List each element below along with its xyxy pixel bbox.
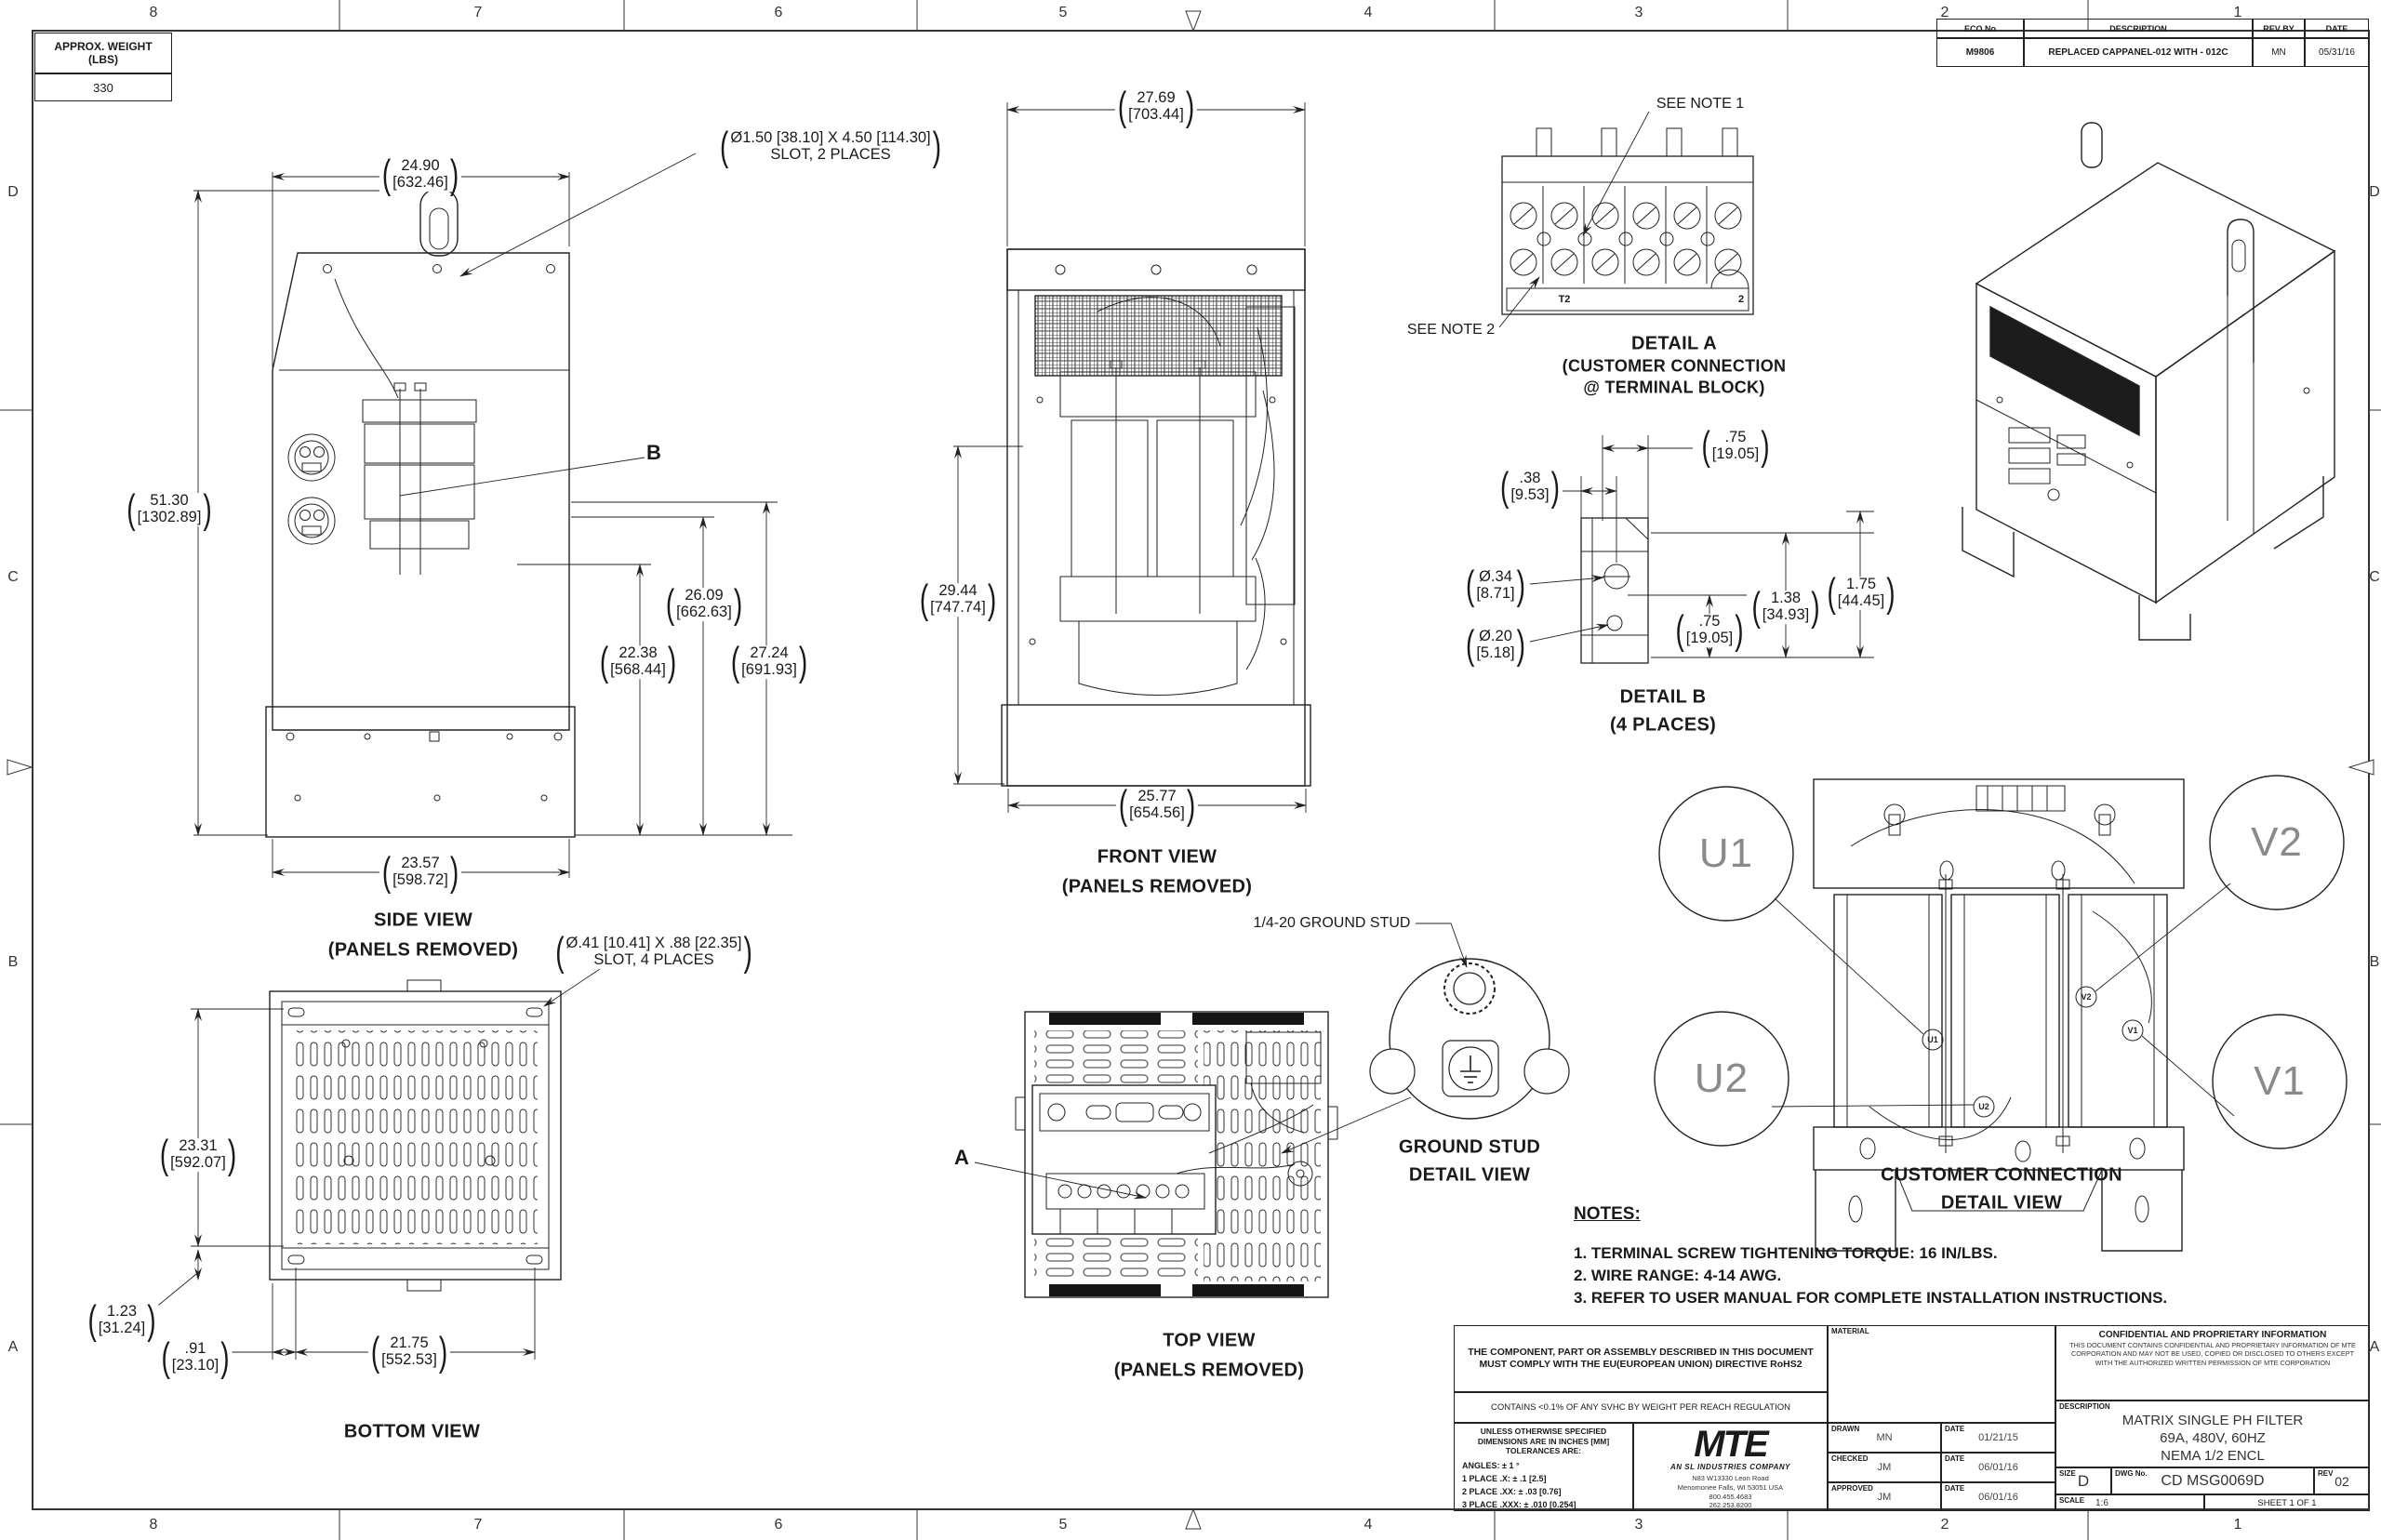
- size-label: SIZE: [2059, 1469, 2076, 1478]
- zone-bottom-7: 7: [474, 1517, 483, 1533]
- eco-header-revby: REV BY: [2253, 19, 2305, 38]
- zone-bottom-5: 5: [1059, 1517, 1068, 1533]
- eco-revby: MN: [2253, 38, 2305, 67]
- zone-right-b: B: [2370, 954, 2380, 971]
- weight-header-line1: APPROX. WEIGHT: [54, 40, 152, 53]
- address-line3: 800.455.4683: [1634, 1493, 1827, 1502]
- front-dim-width-top: (27.69[703.44]): [1115, 90, 1197, 124]
- rev-cell: REV 02: [2314, 1467, 2370, 1494]
- zone-bottom-1: 1: [2234, 1517, 2242, 1533]
- description-label: DESCRIPTION: [2059, 1402, 2110, 1411]
- side-view-title: SIDE VIEW: [374, 910, 472, 932]
- top-view-subtitle: (PANELS REMOVED): [1114, 1361, 1304, 1382]
- customer-connection-title-2: DETAIL VIEW: [1941, 1193, 2062, 1215]
- note-3: 3. REFER TO USER MANUAL FOR COMPLETE INS…: [1574, 1289, 2167, 1308]
- drawn-date-label: DATE: [1945, 1425, 1964, 1433]
- scale-label: SCALE: [2059, 1496, 2084, 1505]
- tag-v1: V1: [2127, 1026, 2137, 1035]
- approved-date-cell: DATE 06/01/16: [1941, 1482, 2055, 1511]
- zone-top-3: 3: [1635, 5, 1643, 21]
- detail-b-dim-20: (Ø.20[5.18]): [1463, 629, 1528, 662]
- sheet-border: [0, 0, 2381, 1540]
- confidential-heading: CONFIDENTIAL AND PROPRIETARY INFORMATION: [2056, 1330, 2369, 1340]
- tol-2place: 2 PLACE .XX: ± .03 [0.76]: [1462, 1486, 1632, 1499]
- approved-label: APPROVED: [1831, 1484, 1873, 1493]
- side-view-drawing: [193, 153, 792, 878]
- balloon-v1: V1: [2254, 1058, 2306, 1105]
- checked-date-label: DATE: [1945, 1454, 1964, 1463]
- drawing-sheet: { "sheet": { "zones_h": ["8","7","6","5"…: [0, 0, 2381, 1540]
- svhc-statement: CONTAINS <0.1% OF ANY SVHC BY WEIGHT PER…: [1454, 1392, 1828, 1423]
- material-label: MATERIAL: [1831, 1327, 1869, 1335]
- detail-a-see-note-2: SEE NOTE 2: [1407, 322, 1495, 339]
- checked-date-cell: DATE 06/01/16: [1941, 1453, 2055, 1482]
- customer-connection-title: CUSTOMER CONNECTION: [1881, 1165, 2122, 1187]
- eco-header-date: DATE: [2305, 19, 2369, 38]
- confidential-box: CONFIDENTIAL AND PROPRIETARY INFORMATION…: [2055, 1325, 2370, 1401]
- detail-b-dim-138: (1.38[34.93]): [1749, 591, 1822, 624]
- top-view-title: TOP VIEW: [1163, 1331, 1255, 1352]
- balloon-v2: V2: [2251, 819, 2303, 866]
- dwg-label: DWG No.: [2115, 1469, 2148, 1478]
- weight-value: 330: [34, 73, 172, 101]
- eco-no: M9806: [1936, 38, 2024, 67]
- detail-a-see-note-1: SEE NOTE 1: [1656, 96, 1744, 113]
- top-view-drawing: [975, 1012, 1337, 1297]
- zone-top-4: 4: [1364, 5, 1373, 21]
- front-view-drawing: [953, 102, 1310, 813]
- detail-a-title-3: @ TERMINAL BLOCK): [1583, 378, 1764, 398]
- bottom-view-title: BOTTOM VIEW: [344, 1422, 480, 1443]
- ground-stud-title: GROUND STUD: [1399, 1137, 1540, 1159]
- tol-1place: 1 PLACE .X: ± .1 [2.5]: [1462, 1473, 1632, 1486]
- confidential-body: THIS DOCUMENT CONTAINS CONFIDENTIAL AND …: [2056, 1340, 2369, 1368]
- approved-date-label: DATE: [1945, 1484, 1964, 1493]
- eco-date: 05/31/16: [2305, 38, 2369, 67]
- zone-bottom-6: 6: [775, 1517, 783, 1533]
- eco-header-no: ECO No: [1936, 19, 2024, 38]
- zone-bottom-3: 3: [1635, 1517, 1643, 1533]
- side-balloon-b: B: [646, 441, 661, 465]
- description-box: DESCRIPTION MATRIX SINGLE PH FILTER 69A,…: [2055, 1401, 2370, 1467]
- notes-heading: NOTES:: [1574, 1204, 1641, 1225]
- detail-b-title: DETAIL B: [1620, 687, 1707, 709]
- logo-subtitle: AN SL INDUSTRIES COMPANY: [1634, 1463, 1827, 1471]
- bottom-dim-123: (1.23[31.24]): [85, 1304, 158, 1337]
- zone-bottom-2: 2: [1941, 1517, 1949, 1533]
- detail-b-dim-38: (.38[9.53]): [1497, 471, 1563, 504]
- zone-right-a: A: [2370, 1339, 2380, 1356]
- drawn-date-cell: DATE 01/21/15: [1941, 1423, 2055, 1453]
- tol-head2: DIMENSIONS ARE IN INCHES [MM]: [1455, 1437, 1632, 1447]
- detail-a-title-2: (CUSTOMER CONNECTION: [1563, 357, 1787, 377]
- top-balloon-a: A: [954, 1146, 969, 1170]
- sheet-value: SHEET 1 OF 1: [2205, 1495, 2369, 1510]
- detail-b-dim-75-bottom: (.75[19.05]): [1672, 614, 1746, 647]
- scale-cell: SCALE 1:6: [2055, 1494, 2204, 1511]
- tol-head3: TOLERANCES ARE:: [1455, 1446, 1632, 1456]
- description-line2: 69A, 480V, 60HZ: [2056, 1430, 2369, 1448]
- bottom-slot-callout: (Ø.41 [10.41] X .88 [22.35]SLOT, 4 PLACE…: [552, 936, 755, 969]
- zone-top-6: 6: [775, 5, 783, 21]
- description-line1: MATRIX SINGLE PH FILTER: [2056, 1413, 2369, 1430]
- eco-desc: REPLACED CAPPANEL-012 WITH - 012C: [2024, 38, 2253, 67]
- tolerance-block: UNLESS OTHERWISE SPECIFIED DIMENSIONS AR…: [1454, 1423, 1633, 1511]
- zone-bottom-4: 4: [1364, 1517, 1373, 1533]
- sheet-cell: SHEET 1 OF 1: [2204, 1494, 2370, 1511]
- tag-u1: U1: [1927, 1035, 1938, 1044]
- dwg-cell: DWG No. CD MSG0069D: [2111, 1467, 2314, 1494]
- detail-b-dim-34: (Ø.34[8.71]): [1463, 569, 1528, 603]
- isometric-view-drawing: [1962, 123, 2334, 640]
- tol-angles: ANGLES: ± 1 °: [1462, 1460, 1632, 1473]
- side-dim-width-top: (24.90[632.46]): [379, 158, 461, 192]
- logo-block: MTE AN SL INDUSTRIES COMPANY N83 W13330 …: [1633, 1423, 1828, 1511]
- tag-u2: U2: [1978, 1102, 1989, 1111]
- terminal-label-t2: T2: [1559, 294, 1571, 305]
- zone-top-5: 5: [1059, 5, 1068, 21]
- zone-right-c: C: [2369, 569, 2380, 586]
- bottom-dim-width: (21.75[552.53]): [368, 1335, 450, 1369]
- zone-bottom-8: 8: [150, 1517, 158, 1533]
- side-dim-width-bottom: (23.57[598.72]): [379, 856, 461, 889]
- zone-left-d: D: [7, 184, 19, 201]
- side-view-subtitle: (PANELS REMOVED): [328, 940, 518, 962]
- material-box: MATERIAL: [1828, 1325, 2055, 1423]
- detail-b-dim-175: (1.75[44.45]): [1824, 577, 1897, 610]
- zone-top-7: 7: [474, 5, 483, 21]
- tag-v2: V2: [2081, 992, 2091, 1002]
- drawn-label: DRAWN: [1831, 1425, 1859, 1433]
- zone-top-8: 8: [150, 5, 158, 21]
- description-line3: NEMA 1/2 ENCL: [2056, 1448, 2369, 1466]
- mte-logo: MTE: [1634, 1426, 1827, 1463]
- scale-value: 1:6: [2095, 1498, 2108, 1508]
- address-line4: 262.253.8200: [1634, 1501, 1827, 1510]
- bottom-dim-height: (23.31[592.07]): [157, 1138, 239, 1172]
- title-block: THE COMPONENT, PART OR ASSEMBLY DESCRIBE…: [1454, 1325, 2370, 1511]
- balloon-u1: U1: [1699, 830, 1753, 877]
- side-slot-callout: (Ø1.50 [38.10] X 4.50 [114.30]SLOT, 2 PL…: [717, 130, 944, 164]
- weight-header-line2: (LBS): [88, 53, 118, 66]
- side-dim-h2: (26.09[662.63]): [663, 588, 745, 621]
- front-dim-width-bottom: (25.77[654.56]): [1116, 789, 1198, 822]
- front-view-title: FRONT VIEW: [1097, 847, 1217, 869]
- rohs-statement: THE COMPONENT, PART OR ASSEMBLY DESCRIBE…: [1454, 1325, 1828, 1392]
- drawing-linework: [0, 0, 2381, 1540]
- checked-label: CHECKED: [1831, 1454, 1869, 1463]
- approved-cell: APPROVED JM: [1828, 1482, 1941, 1511]
- detail-a-drawing: [1499, 112, 1753, 327]
- side-dim-h1: (22.38[568.44]): [597, 645, 679, 679]
- drawn-cell: DRAWN MN: [1828, 1423, 1941, 1453]
- ground-stud-callout: 1/4-20 GROUND STUD: [1254, 915, 1411, 932]
- zone-right-d: D: [2369, 184, 2380, 201]
- checked-cell: CHECKED JM: [1828, 1453, 1941, 1482]
- side-dim-height: (51.30[1302.89]): [124, 493, 214, 526]
- zone-left-b: B: [8, 954, 19, 971]
- address-line1: N83 W13330 Leon Road: [1634, 1474, 1827, 1483]
- tol-3place: 3 PLACE .XXX: ± .010 [0.254]: [1462, 1499, 1632, 1512]
- side-dim-h3: (27.24[691.93]): [728, 645, 810, 679]
- eco-header-desc: DESCRIPTION: [2024, 19, 2253, 38]
- front-dim-height: (29.44[747.74]): [917, 583, 999, 617]
- bottom-dim-091: (.91[23.10]): [158, 1341, 232, 1374]
- note-2: 2. WIRE RANGE: 4-14 AWG.: [1574, 1267, 1781, 1285]
- rev-label: REV: [2318, 1469, 2333, 1478]
- detail-a-title: DETAIL A: [1631, 334, 1717, 355]
- balloon-u2: U2: [1695, 1055, 1749, 1102]
- address-line2: Menomonee Falls, WI 53051 USA: [1634, 1483, 1827, 1493]
- ground-stud-drawing: [1282, 923, 1569, 1153]
- zone-left-a: A: [8, 1339, 19, 1356]
- front-view-subtitle: (PANELS REMOVED): [1062, 877, 1252, 898]
- size-cell: SIZE D: [2055, 1467, 2111, 1494]
- detail-b-title-2: (4 PLACES): [1610, 715, 1716, 737]
- ground-stud-title-2: DETAIL VIEW: [1409, 1165, 1530, 1187]
- zone-left-c: C: [7, 569, 19, 586]
- terminal-label-2: 2: [1738, 294, 1744, 305]
- tol-head1: UNLESS OTHERWISE SPECIFIED: [1455, 1427, 1632, 1437]
- detail-b-dim-75-top: (.75[19.05]): [1698, 430, 1772, 463]
- note-1: 1. TERMINAL SCREW TIGHTENING TORQUE: 16 …: [1574, 1244, 1998, 1263]
